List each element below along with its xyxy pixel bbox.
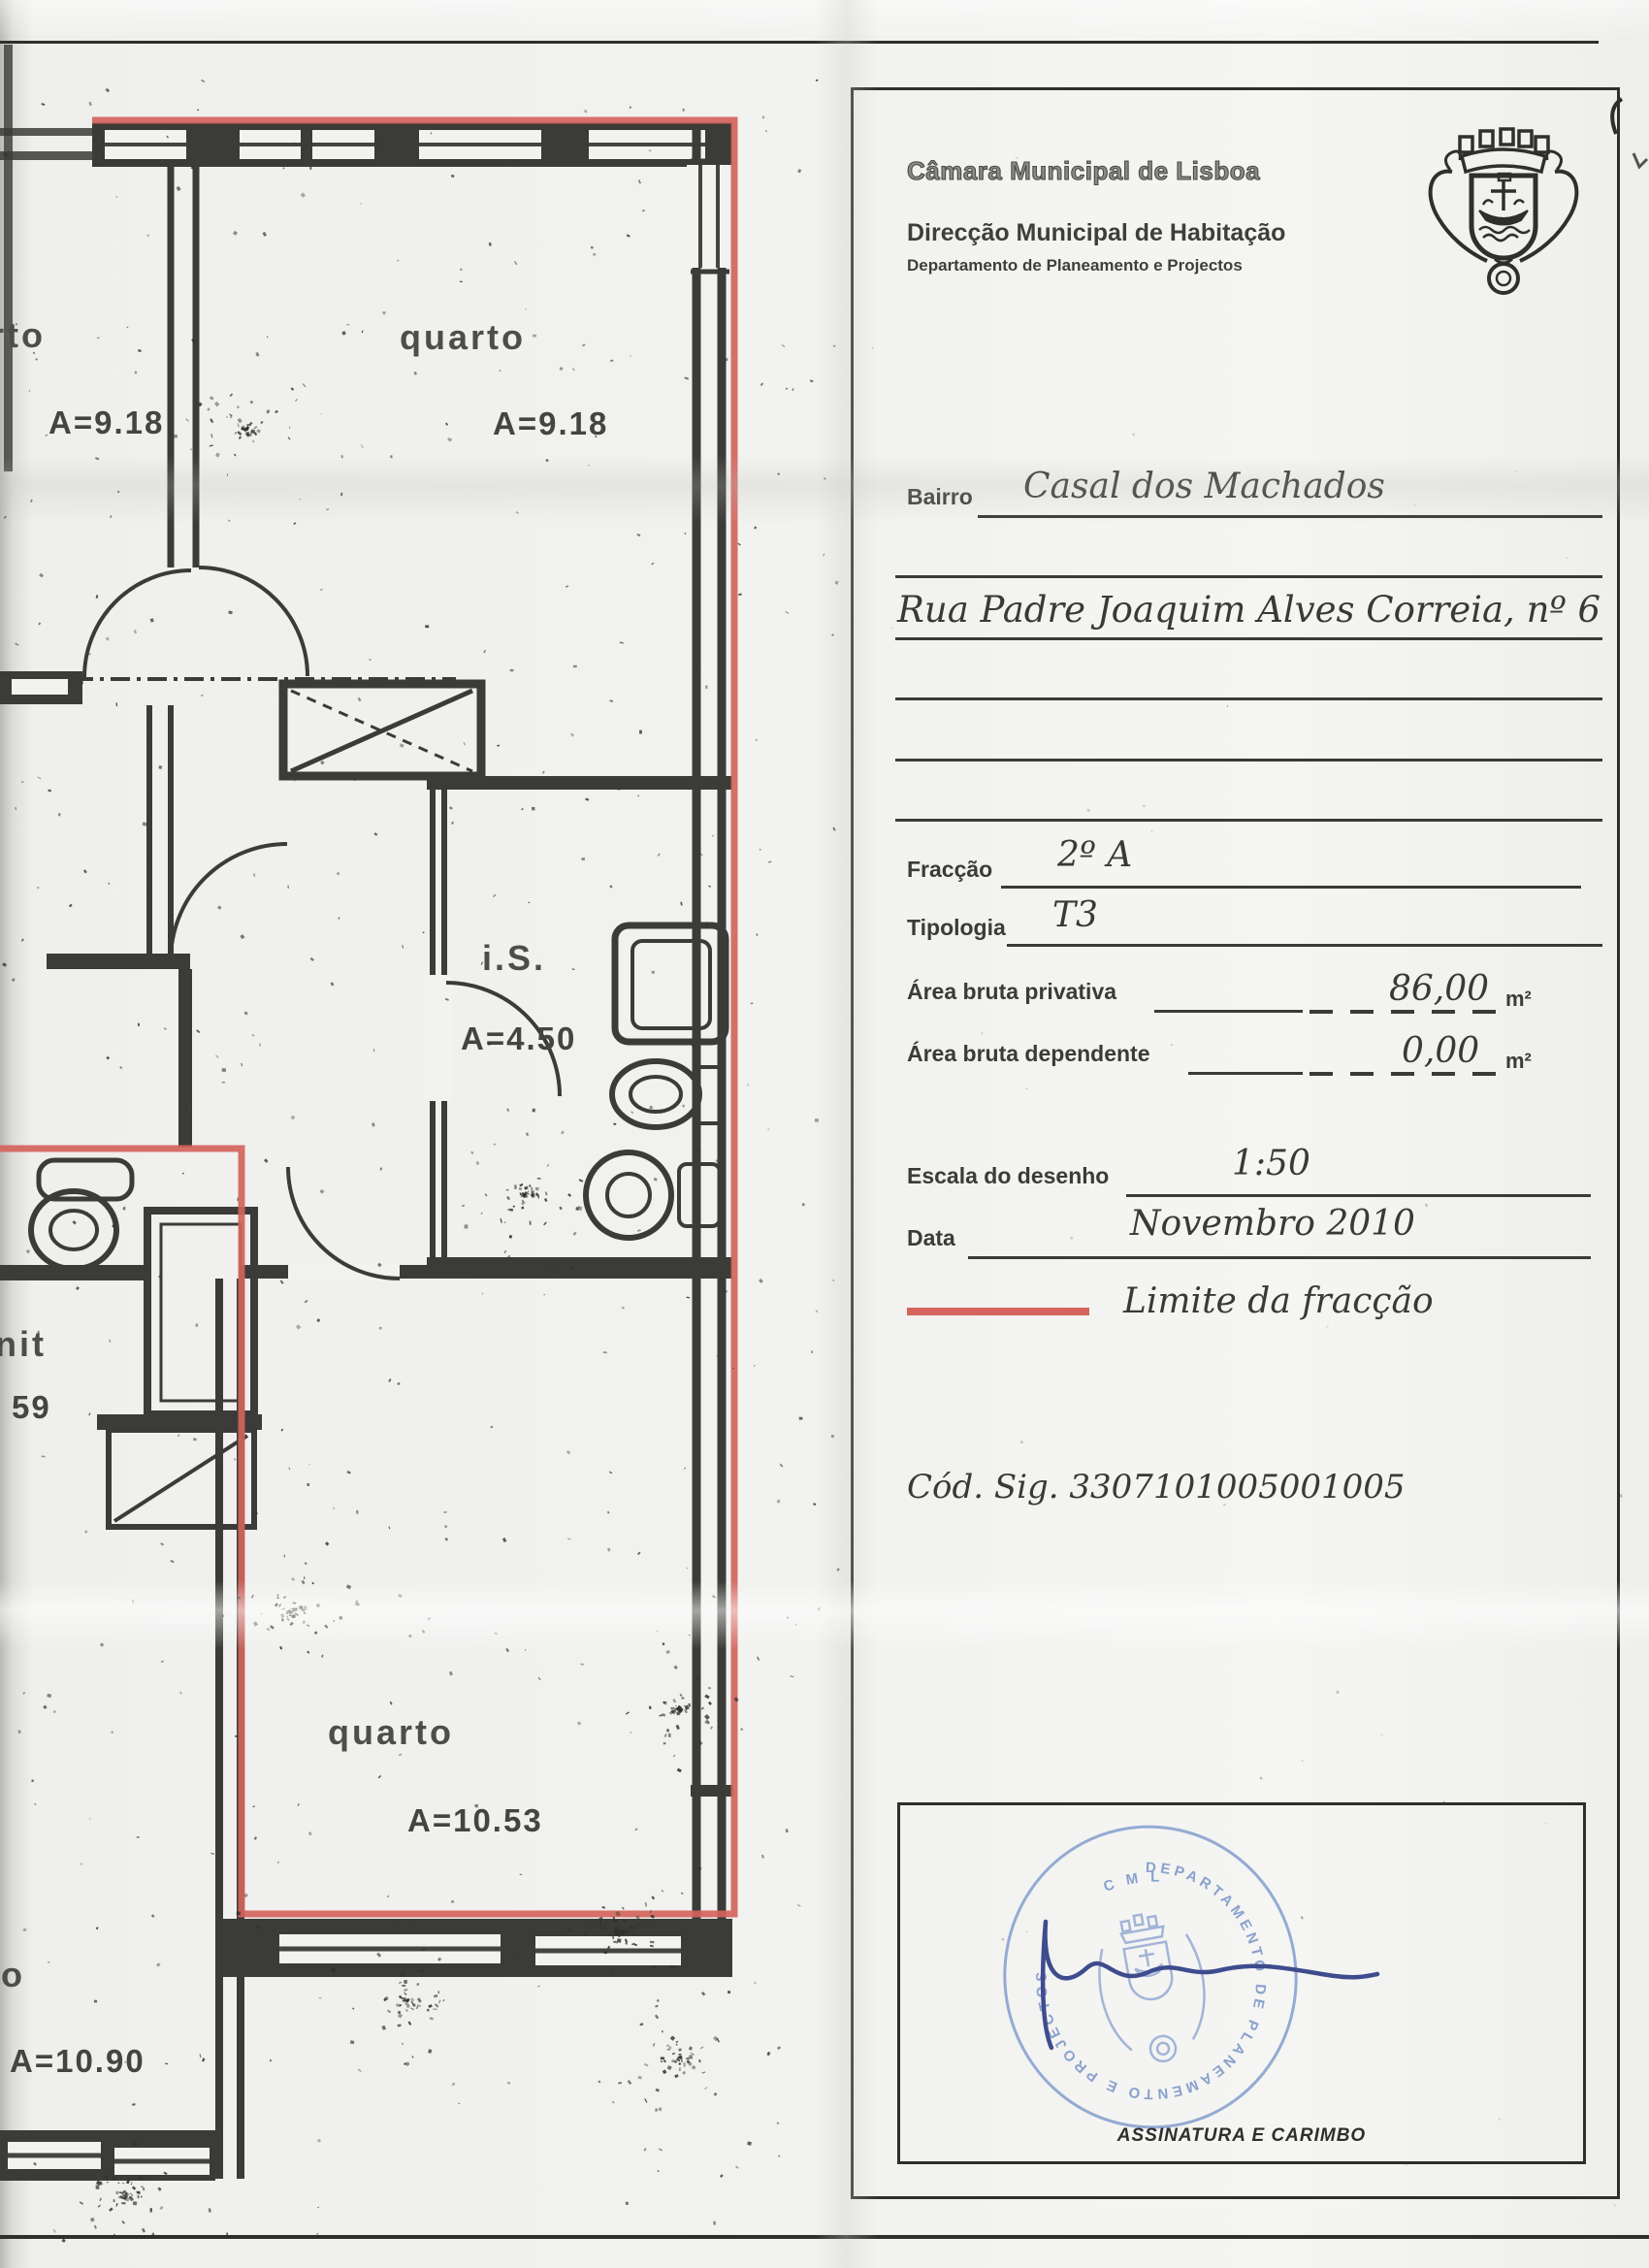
left-scan-edge bbox=[4, 45, 13, 471]
room-area-top-left: A=9.18 bbox=[48, 405, 164, 440]
lisbon-coat-of-arms-icon bbox=[1402, 112, 1605, 310]
area-privativa-label: Área bruta privativa bbox=[907, 979, 1116, 1005]
area-privativa-dashes bbox=[1309, 1010, 1499, 1014]
room-label-bottom: quarto bbox=[328, 1712, 454, 1752]
neighbor-area-fragment: 59 bbox=[12, 1389, 51, 1425]
fraccao-label: Fracção bbox=[907, 857, 992, 883]
fraccao-underline bbox=[1001, 886, 1581, 889]
bathroom-area: A=4.50 bbox=[461, 1021, 576, 1056]
area-dependente-dashes bbox=[1309, 1072, 1499, 1076]
form-panel: Câmara Municipal de Lisboa Direcção Muni… bbox=[851, 87, 1620, 2199]
room-area-bottom-left: A=10.90 bbox=[10, 2043, 145, 2079]
tipologia-label: Tipologia bbox=[907, 915, 1006, 941]
area-privativa-value: 86,00 bbox=[1389, 969, 1489, 1009]
address-value: Rua Padre Joaquim Alves Correia, nº 6 bbox=[897, 589, 1600, 631]
room-area-bottom: A=10.53 bbox=[407, 1802, 543, 1838]
escala-value: 1:50 bbox=[1232, 1144, 1310, 1183]
area-dependente-value: 0,00 bbox=[1402, 1031, 1479, 1071]
municipality-title: Câmara Municipal de Lisboa bbox=[907, 156, 1260, 186]
stamp-coat-of-arms bbox=[1088, 1906, 1215, 2070]
area-dependente-line bbox=[1188, 1072, 1303, 1075]
data-value: Novembro 2010 bbox=[1130, 1204, 1415, 1244]
room-label-top-right: quarto bbox=[400, 317, 526, 357]
fraction-boundary-line bbox=[0, 120, 734, 1914]
signature-caption: ASSINATURA E CARIMBO bbox=[900, 2125, 1583, 2147]
area-privativa-unit: m² bbox=[1505, 987, 1532, 1012]
sheet-bottom-edge-line bbox=[0, 2235, 1649, 2239]
bathroom-label: i.S. bbox=[482, 938, 546, 978]
room-label-bottom-left-fragment: to bbox=[0, 1955, 25, 1994]
tipologia-value: T3 bbox=[1052, 895, 1098, 935]
sheet-top-edge-line bbox=[0, 41, 1599, 44]
direction-title: Direcção Municipal de Habitação bbox=[907, 219, 1285, 247]
room-label-top-left-fragment: rto bbox=[0, 315, 46, 355]
area-privativa-line bbox=[1154, 1010, 1303, 1013]
area-dependente-unit: m² bbox=[1505, 1049, 1532, 1074]
area-dependente-label: Área bruta dependente bbox=[907, 1041, 1150, 1067]
cml-stamp-icon: C M L DEPARTAMENTO DE PLANEAMENTO E PROJ… bbox=[900, 1805, 1583, 2161]
tipologia-underline bbox=[1007, 944, 1602, 947]
escala-label: Escala do desenho bbox=[907, 1163, 1109, 1189]
escala-underline bbox=[1126, 1194, 1591, 1197]
room-area-top-right: A=9.18 bbox=[493, 405, 608, 441]
fraction-boundary-legend-swatch bbox=[907, 1308, 1089, 1315]
blank-line bbox=[895, 697, 1602, 700]
fraction-boundary-legend-label: Limite da fracção bbox=[1123, 1281, 1434, 1321]
signature-box: C M L DEPARTAMENTO DE PLANEAMENTO E PROJ… bbox=[897, 1802, 1586, 2164]
signature-scribble bbox=[1043, 1922, 1377, 2048]
bairro-value: Casal dos Machados bbox=[1023, 467, 1385, 506]
department-title: Departamento de Planeamento e Projectos bbox=[907, 256, 1243, 275]
address-underline bbox=[895, 637, 1602, 640]
bairro-label: Bairro bbox=[907, 484, 973, 510]
fraccao-value: 2º A bbox=[1057, 835, 1132, 875]
blank-line bbox=[895, 819, 1602, 822]
cod-sig-value: Cód. Sig. 3307101005001005 bbox=[907, 1468, 1406, 1507]
data-underline bbox=[968, 1256, 1591, 1259]
blank-line bbox=[895, 575, 1602, 578]
blank-line bbox=[895, 759, 1602, 761]
paper-crease-mark bbox=[1633, 153, 1647, 167]
data-label: Data bbox=[907, 1225, 955, 1251]
neighbor-label-fragment: anit bbox=[0, 1324, 47, 1364]
bairro-underline bbox=[978, 515, 1602, 518]
scanned-floorplan-document: { "header": { "municipality": "Câmara Mu… bbox=[0, 0, 1649, 2268]
